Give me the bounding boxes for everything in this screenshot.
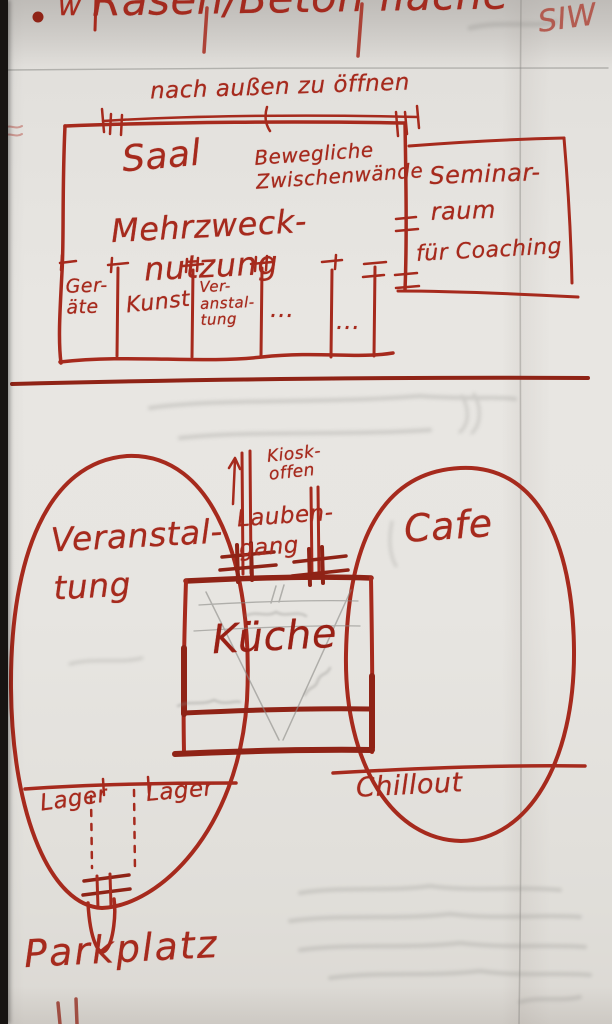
seminar-room-name: Seminar- raum <box>429 154 543 230</box>
right-area-label: Cafe <box>403 502 494 552</box>
photo-edge <box>0 0 8 1024</box>
photo-bottom-marks <box>58 999 77 1024</box>
flipchart-photo: Rasen/Beton fläche w SIW nach außen zu ö… <box>0 0 612 1024</box>
room-label-dots-1: ... <box>270 296 294 324</box>
room-label-geraete: Ger- äte <box>65 275 108 318</box>
kiosk-arrow <box>233 460 235 504</box>
kiosk-note: Kiosk- offen <box>266 443 324 484</box>
hall-name: Saal <box>120 133 202 181</box>
room-label-veranstaltung: Ver- anstal- tung <box>199 277 255 328</box>
kitchen-label: Küche <box>211 611 338 663</box>
room-label-dots-2: ... <box>336 308 360 336</box>
red-dot <box>33 12 44 23</box>
left-area-label: Veranstal- tung <box>50 508 227 613</box>
chillout-label: Chillout <box>355 767 463 804</box>
title-left-fragment: w <box>58 0 81 22</box>
walkway-label: Lauben- gang <box>236 499 337 565</box>
